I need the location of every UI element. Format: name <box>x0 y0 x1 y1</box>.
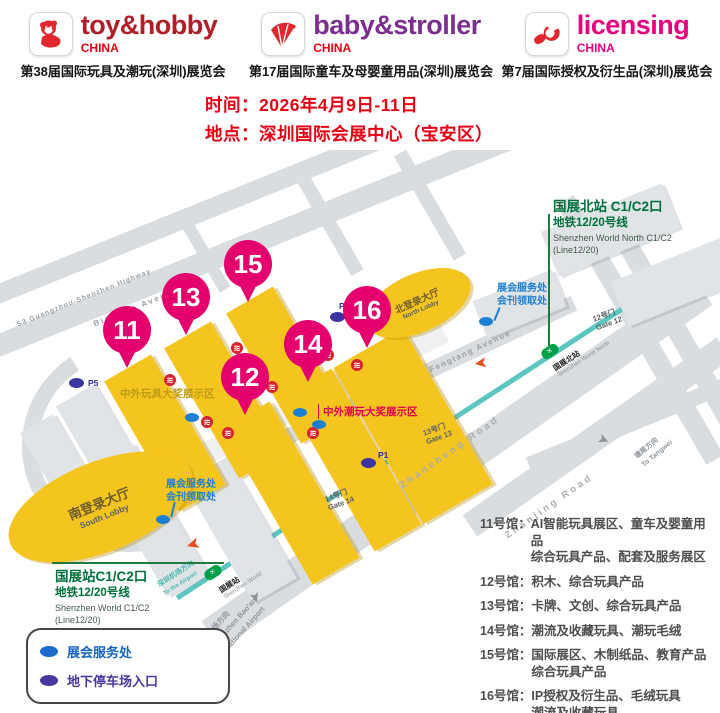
service-point-dot <box>293 408 307 417</box>
brand-subtitle: 第7届国际授权及衍生品(深圳)展览会 <box>502 61 713 80</box>
header: toy&hobby CHINA 第38届国际玩具及潮玩(深圳)展览会 baby&… <box>0 0 720 88</box>
pin-hall-15: 15 <box>224 240 272 304</box>
parking-dot <box>361 458 376 468</box>
hall-directory-entry: 12号馆：积木、综合玩具产品 <box>480 574 718 591</box>
event-time: 时间：2026年4月9日-11日 <box>205 92 418 117</box>
pin-hall-13: 13 <box>162 273 210 337</box>
brand-subtitle: 第17届国际童车及母婴童用品(深圳)展览会 <box>249 61 493 80</box>
brand-toy-hobby: toy&hobby CHINA 第38届国际玩具及潮玩(深圳)展览会 <box>8 12 238 80</box>
pin-hall-14: 14 <box>284 320 332 384</box>
south-station-pointer-line <box>52 562 224 564</box>
service-note-north: 展会服务处会刊领取处 <box>497 282 547 308</box>
pin-hall-11: 11 <box>103 306 151 370</box>
metro-entrance-icon: ≋ <box>222 427 234 439</box>
metro-entrance-icon: ≋ <box>351 359 363 371</box>
legend-item-service: 展会服务处 <box>40 642 216 661</box>
entrance-arrow-north: ➤ <box>473 353 489 371</box>
legend-item-parking: 地下停车场入口 <box>40 671 216 690</box>
metro-entrance-icon: ≋ <box>164 374 176 386</box>
tangwei-direction-label: 塘尾方向 To Tangwei <box>633 430 675 470</box>
metro-entrance-icon: ≋ <box>201 416 213 428</box>
parking-dot <box>69 378 84 388</box>
brand-country: CHINA <box>313 42 481 54</box>
service-point-dot <box>156 515 170 524</box>
north-station-info: 国展北站 C1/C2口 地铁12/20号线 Shenzhen World Nor… <box>553 198 672 256</box>
venue-map: 南登录大厅 South Lobby 北登录大厅 North Lobby 11 1… <box>0 150 720 713</box>
brand-licensing: licensing CHINA 第7届国际授权及衍生品(深圳)展览会 <box>494 12 720 80</box>
toy-award-zone-label: 中外玩具大奖展示区 <box>120 386 215 401</box>
service-point-dot <box>479 317 493 326</box>
brand-country: CHINA <box>577 42 690 54</box>
brand-baby-stroller: baby&stroller CHINA 第17届国际童车及母婴童用品(深圳)展览… <box>240 12 502 80</box>
pin-hall-16: 16 <box>343 286 391 350</box>
service-point-dot <box>185 413 199 422</box>
brand-subtitle: 第38届国际玩具及潮玩(深圳)展览会 <box>20 61 225 80</box>
pin-hall-12: 12 <box>221 353 269 417</box>
map-legend: 展会服务处 地下停车场入口 <box>26 628 230 704</box>
ginkgo-leaf-icon <box>261 12 305 56</box>
parking-label-p1: P1 <box>378 450 388 460</box>
south-station-info: 国展站C1/C2口 地铁12/20号线 Shenzhen World C1/C2… <box>55 568 149 626</box>
teddy-bear-icon <box>29 12 73 56</box>
parking-label-p5: P5 <box>88 378 98 388</box>
licensing-logo-icon <box>525 12 569 56</box>
legend-label: 展会服务处 <box>67 642 132 661</box>
service-point-dot <box>312 420 326 429</box>
brand-name: toy&hobby <box>81 12 218 39</box>
hall-directory-entry: 14号馆：潮流及收藏玩具、潮玩毛绒 <box>480 623 718 640</box>
legend-label: 地下停车场入口 <box>67 671 158 690</box>
brand-name: baby&stroller <box>313 12 481 39</box>
hall-directory-entry: 16号馆：IP授权及衍生品、毛绒玩具 潮流及收藏玩具 <box>480 688 718 713</box>
service-point-icon <box>40 646 58 657</box>
service-note-south: 展会服务处会刊领取处 <box>166 478 216 504</box>
event-place: 地点：深圳国际会展中心（宝安区） <box>205 121 493 146</box>
north-station-pointer-line <box>548 214 550 348</box>
brand-country: CHINA <box>81 42 218 54</box>
brand-name: licensing <box>577 12 690 39</box>
hall-directory: 11号馆：AI智能玩具展区、童车及婴童用品 综合玩具产品、配套及服务展区 12号… <box>480 516 718 713</box>
trend-award-zone-label: 中外潮玩大奖展示区 <box>318 404 418 419</box>
hall-directory-entry: 11号馆：AI智能玩具展区、童车及婴童用品 综合玩具产品、配套及服务展区 <box>480 516 718 566</box>
hall-directory-entry: 13号馆：卡牌、文创、综合玩具产品 <box>480 598 718 615</box>
hall-directory-entry: 15号馆：国际展区、木制纸品、教育产品 综合玩具产品 <box>480 647 718 680</box>
parking-entrance-icon <box>40 675 58 686</box>
